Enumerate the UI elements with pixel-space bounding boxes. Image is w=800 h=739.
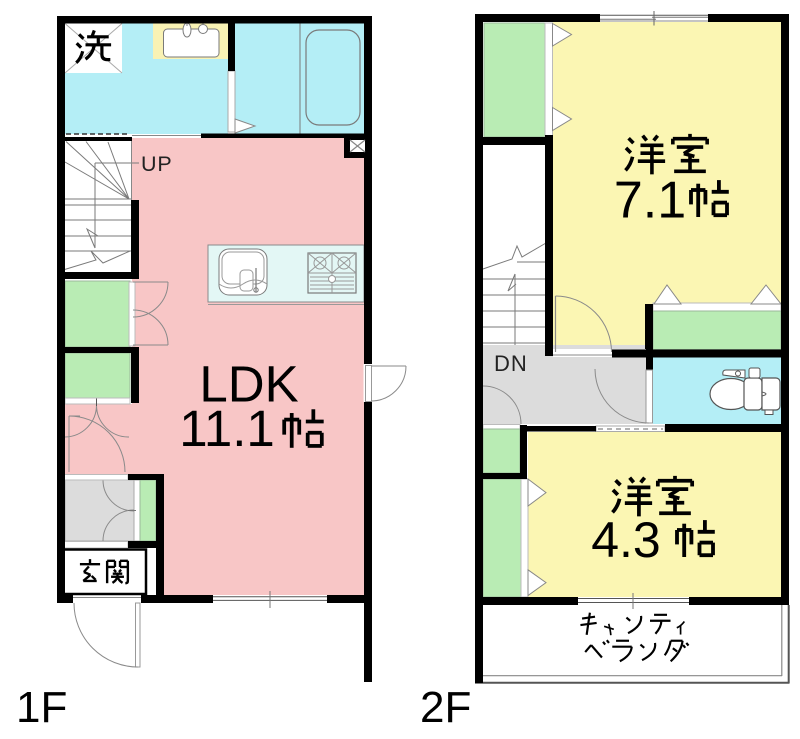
svg-text:DN: DN xyxy=(494,351,528,376)
svg-text:1F: 1F xyxy=(16,683,67,732)
svg-text:UP: UP xyxy=(141,152,172,176)
svg-text:7.1: 7.1 xyxy=(614,172,686,230)
svg-text:11.1: 11.1 xyxy=(179,400,274,457)
svg-text:2F: 2F xyxy=(420,683,471,732)
svg-text:4.3: 4.3 xyxy=(591,512,661,568)
